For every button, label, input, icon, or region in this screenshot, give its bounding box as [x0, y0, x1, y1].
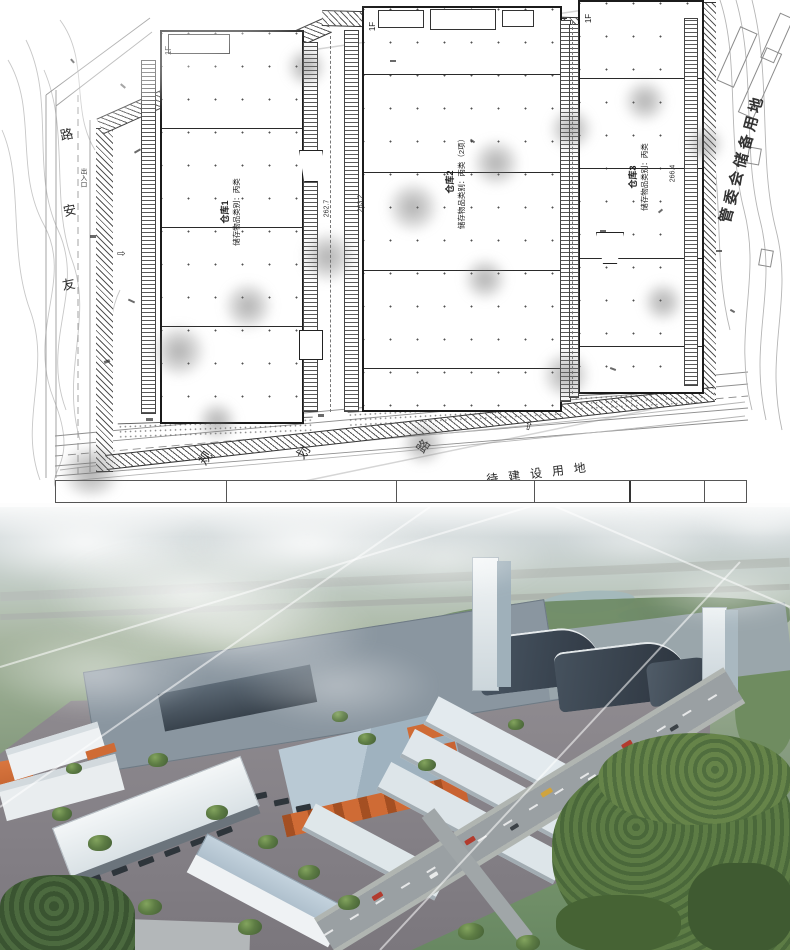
dock-strip-w3-west: [569, 24, 579, 398]
entrance-arrow-west: ⇧: [115, 249, 126, 257]
dock-lane-centerline-2: [572, 22, 573, 394]
aerial-render: [0, 507, 790, 950]
dimension-3: 266.4: [669, 165, 676, 183]
composite-architectural-image: 仓库1 储存物品类别：丙类 仓库2 储存物品类别：丙类（2项） 仓库3 储存物品…: [0, 0, 790, 950]
site-plan: 仓库1 储存物品类别：丙类 仓库2 储存物品类别：丙类（2项） 仓库3 储存物品…: [0, 0, 790, 505]
dimension-2: 263.2: [357, 195, 364, 213]
warehouse-1-category: 储存物品类别：丙类: [231, 132, 242, 292]
dock-lane-centerline-1: [330, 36, 331, 412]
dimension-1: 262.7: [323, 200, 330, 218]
entrance-label: 出入口: [77, 168, 87, 188]
dock-strip-w3-east: [684, 18, 698, 386]
warehouse-3-floor: 1F: [584, 14, 593, 23]
warehouse-1-label: 仓库1 储存物品类别：丙类: [218, 132, 242, 292]
warehouse-2-floor: 1F: [368, 22, 377, 31]
warehouse-2-office-c: [502, 10, 534, 27]
scale-strip: [55, 480, 747, 503]
dock-strip-w2-west: [344, 30, 359, 412]
watermark-lines-svg: [0, 507, 790, 950]
warehouse-2-category: 储存物品类别：丙类（2项）: [456, 102, 467, 262]
warehouse-1-name: 仓库1: [218, 132, 231, 292]
warehouse-2-office-a: [378, 10, 424, 28]
warehouse-2-office-b: [430, 9, 496, 30]
warehouse-2-label: 仓库2 储存物品类别：丙类（2项）: [443, 102, 467, 262]
perimeter-road-west: [96, 128, 113, 472]
dock-ramp-2: [299, 330, 323, 360]
warehouse-2-name: 仓库2: [443, 102, 456, 262]
